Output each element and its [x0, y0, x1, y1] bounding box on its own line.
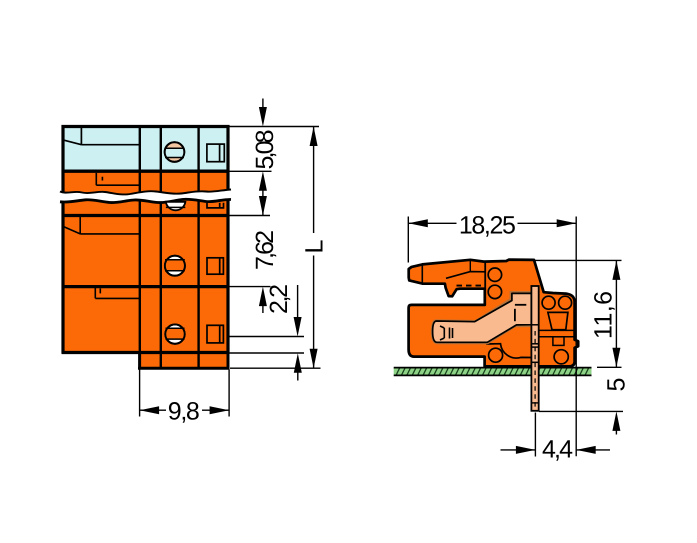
svg-text:7,62: 7,62 [251, 230, 279, 270]
svg-text:5,08: 5,08 [251, 130, 279, 170]
svg-text:5: 5 [603, 378, 631, 392]
svg-text:4,4: 4,4 [542, 436, 573, 464]
svg-text:18,25: 18,25 [459, 212, 516, 240]
svg-text:9,8: 9,8 [168, 398, 200, 426]
svg-text:2,2: 2,2 [265, 284, 293, 314]
svg-text:11,6: 11,6 [590, 291, 618, 339]
svg-text:L: L [300, 240, 328, 254]
